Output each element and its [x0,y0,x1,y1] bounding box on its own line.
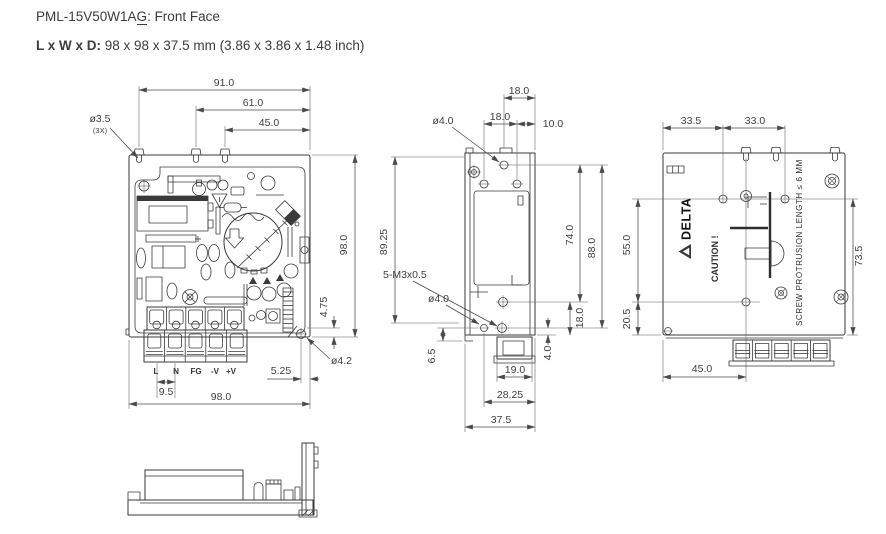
rear-view: DELTA CAUTION ! SCREW PROTRUSION LENGTH … [621,115,865,382]
hole-note-4-0-bottom-label: ø4.0 [428,293,449,305]
dim-19-label: 19.0 [505,364,526,376]
terminal-label-FG: FG [190,367,201,376]
dim-4-0-label: 4.0 [542,346,554,361]
dim-18-right-label: 18.0 [574,308,586,329]
dim-74-label: 74.0 [564,225,576,246]
dim-91-label: 91.0 [214,77,235,89]
dim-88-label: 88.0 [586,238,598,259]
dim-37-5-label: 37.5 [491,414,512,426]
terminal-label-minusV: -V [211,367,220,376]
rear-terminal-block [729,340,834,366]
dim-61-label: 61.0 [243,97,264,109]
hole-note-3x-label: (3X) [93,126,108,135]
drawing-canvas: L N FG -V +V 91.0 61.0 45.0 ø3.5 (3X) 98… [0,0,886,534]
dim-89-25-label: 89.25 [378,229,390,255]
terminal-label-L: L [154,367,159,376]
dim-5-25-label: 5.25 [271,365,292,377]
front-chassis-outline [126,149,310,340]
thread-note-label: 5-M3x0.5 [383,269,427,281]
dim-73-5-label: 73.5 [853,246,865,267]
rear-dimensions: 33.5 33.0 55.0 20.5 73.5 45.0 [621,115,865,382]
side-view: 18.0 18.0 10.0 ø4.0 89.25 5-M3x0.5 ø4.0 … [378,85,608,432]
screw-protrusion-note: SCREW PROTRUSION LENGTH ≤ 6 MM [795,159,804,326]
side-dimensions: 18.0 18.0 10.0 ø4.0 89.25 5-M3x0.5 ø4.0 … [378,85,608,432]
dim-98-bottom-label: 98.0 [211,391,232,403]
screw-sketch [730,192,784,278]
front-view: L N FG -V +V 91.0 61.0 45.0 ø3.5 (3X) 98… [89,77,358,409]
dim-45-label: 45.0 [259,117,280,129]
dim-10-label: 10.0 [543,118,564,130]
dim-4-75-label: 4.75 [318,297,330,318]
hole-note-4-2-label: ø4.2 [331,355,352,367]
dim-9-5-label: 9.5 [159,386,174,398]
dim-20-5-label: 20.5 [621,309,633,330]
dim-18-mid-label: 18.0 [490,111,511,123]
bottom-profile-view [128,443,318,517]
front-pcb [135,167,309,333]
dim-33-5-label: 33.5 [681,115,702,127]
hole-note-4-0-top-label: ø4.0 [432,115,453,127]
side-body-outline [465,148,535,363]
hole-note-3-5-label: ø3.5 [89,113,110,125]
dim-33-0-label: 33.0 [745,115,766,127]
terminal-label-N: N [173,367,179,376]
front-terminal-block: L N FG -V +V [144,307,247,376]
terminal-label-plusV: +V [226,367,237,376]
dim-45-label: 45.0 [692,363,713,375]
dim-55-label: 55.0 [621,235,633,256]
dim-18-top-label: 18.0 [509,85,530,97]
brand-label: DELTA [680,198,694,240]
dim-28-25-label: 28.25 [497,389,523,401]
caution-label: CAUTION ! [710,236,720,283]
dim-98-right-label: 98.0 [338,235,350,256]
dim-6-5-label: 6.5 [426,349,438,364]
delta-logo: DELTA [679,198,694,259]
